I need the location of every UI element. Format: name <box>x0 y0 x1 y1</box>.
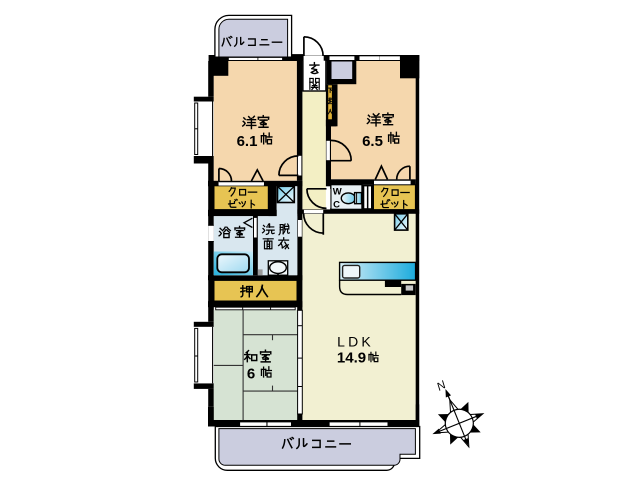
svg-text:6.5: 6.5 <box>362 133 383 150</box>
svg-text:6: 6 <box>247 366 255 383</box>
svg-text:LDK: LDK <box>337 333 374 349</box>
svg-text:C: C <box>333 200 340 211</box>
svg-text:W: W <box>333 187 342 198</box>
svg-text:14.9: 14.9 <box>337 350 366 367</box>
svg-text:6.1: 6.1 <box>237 133 258 150</box>
